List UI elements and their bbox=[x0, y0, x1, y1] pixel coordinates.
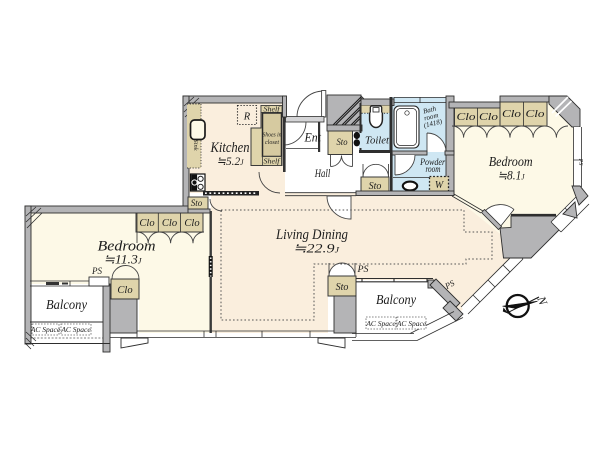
svg-text:PS: PS bbox=[91, 266, 102, 276]
svg-text:Ent: Ent bbox=[303, 131, 321, 145]
svg-text:Clo: Clo bbox=[457, 112, 476, 123]
svg-text:Sto: Sto bbox=[369, 181, 382, 192]
svg-text:≒22.9J: ≒22.9J bbox=[293, 241, 340, 256]
svg-text:Clo: Clo bbox=[162, 218, 177, 229]
svg-text:≒11.3J: ≒11.3J bbox=[104, 252, 142, 267]
svg-text:AC Space: AC Space bbox=[60, 325, 91, 334]
svg-text:Shelf: Shelf bbox=[264, 106, 281, 114]
svg-text:AC Space: AC Space bbox=[396, 319, 427, 328]
svg-text:AC Space: AC Space bbox=[365, 319, 396, 328]
svg-text:≒5.2J: ≒5.2J bbox=[217, 154, 244, 168]
svg-text:Toilet: Toilet bbox=[365, 136, 389, 147]
svg-text:Clo: Clo bbox=[139, 218, 154, 229]
svg-text:room: room bbox=[426, 165, 441, 175]
svg-text:Bedroom: Bedroom bbox=[489, 154, 533, 169]
svg-text:PS: PS bbox=[356, 264, 369, 274]
svg-text:PS: PS bbox=[577, 158, 583, 166]
svg-text:Sink: Sink bbox=[192, 139, 199, 150]
svg-text:Clo: Clo bbox=[526, 109, 545, 120]
svg-text:Clo: Clo bbox=[502, 109, 521, 120]
svg-text:Clo: Clo bbox=[184, 218, 199, 229]
svg-text:Hall: Hall bbox=[314, 168, 330, 180]
svg-text:Sto: Sto bbox=[191, 198, 203, 208]
svg-text:closet: closet bbox=[265, 139, 279, 146]
svg-text:Shelf: Shelf bbox=[264, 158, 281, 166]
svg-text:≒8.1J: ≒8.1J bbox=[498, 169, 525, 183]
svg-text:Clo: Clo bbox=[479, 112, 498, 123]
svg-text:Sto: Sto bbox=[336, 282, 349, 293]
svg-text:Balcony: Balcony bbox=[46, 298, 88, 313]
svg-text:Sto: Sto bbox=[337, 138, 348, 148]
svg-text:Balcony: Balcony bbox=[376, 292, 416, 307]
svg-text:R: R bbox=[243, 112, 251, 123]
svg-text:Clo: Clo bbox=[117, 285, 132, 296]
svg-text:Shoes in: Shoes in bbox=[263, 132, 282, 139]
svg-text:AC Space: AC Space bbox=[30, 325, 61, 334]
